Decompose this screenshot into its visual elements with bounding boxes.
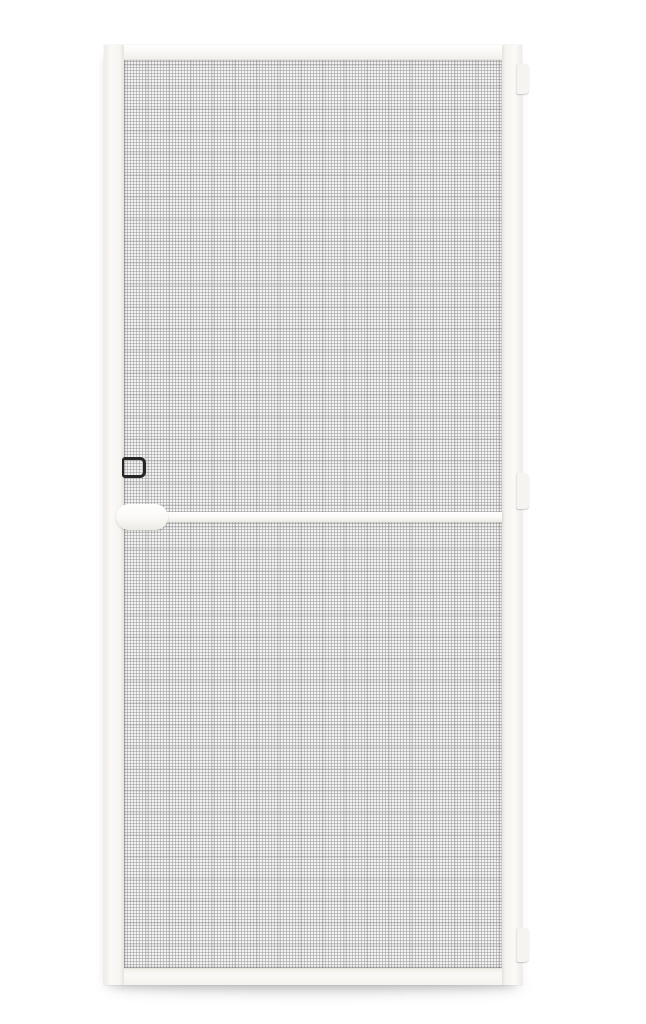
hinge-middle [516,473,529,509]
pull-handle [122,457,146,478]
frame-top-rail [104,45,522,60]
middle-rail-end-plate [116,504,168,530]
screen-door [104,45,522,985]
product-photo [0,0,646,1024]
frame-right-stile [502,45,522,985]
hinge-top [516,64,529,94]
hinge-bottom [516,928,529,962]
frame-bottom-rail [104,968,522,985]
middle-cross-rail [124,512,502,522]
